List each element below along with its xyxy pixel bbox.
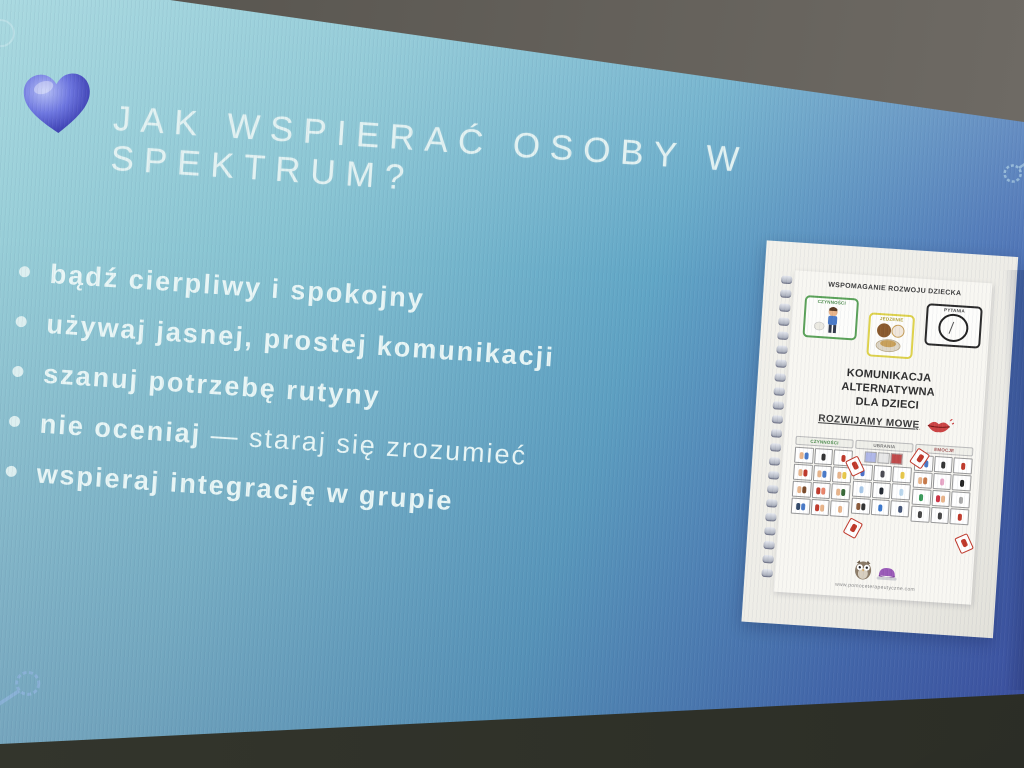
pictogram-cell <box>851 498 871 515</box>
pictogram-cell <box>810 499 830 516</box>
bullet-dot-icon <box>12 366 24 378</box>
owl-icon <box>853 559 872 581</box>
pictogram-food: JEDZENIE <box>866 312 915 359</box>
circuit-node-icon <box>0 651 64 718</box>
cover-pictograms: CZYNNOŚCI JEDZENIE <box>801 295 983 367</box>
pictogram-cell <box>794 447 814 464</box>
board-activities: CZYNNOŚCI <box>788 436 853 552</box>
bullet-text: bądź cierpliwy i spokojny <box>49 259 426 314</box>
pictogram-cell <box>953 458 973 475</box>
bullet-list: bądź cierpliwy i spokojny używaj jasnej,… <box>3 257 559 542</box>
booklet-subtitle: ROZWIJAMY MOWĘ <box>818 414 920 432</box>
pictogram-cell <box>930 507 950 524</box>
pictogram-cell <box>813 465 833 482</box>
pictogram-cell <box>873 465 893 482</box>
booklet-title: KOMUNIKACJA ALTERNATYWNA DLA DZIECI <box>798 364 978 417</box>
pictogram-cell <box>952 475 972 492</box>
boy-pictogram-icon <box>810 304 852 337</box>
bullet-dot-icon <box>15 316 27 328</box>
pictogram-cell <box>912 489 932 506</box>
slide-title: JAK WSPIERAĆ OSOBY W SPEKTRUM? <box>109 99 1012 238</box>
bullet-dot-icon <box>9 416 21 428</box>
pictogram-cell <box>951 492 971 509</box>
pictogram-cell <box>793 464 813 481</box>
pictogram-cell <box>931 490 951 507</box>
pictogram-activities: CZYNNOŚCI <box>802 295 859 340</box>
pictogram-cell <box>870 499 890 516</box>
pictogram-cell <box>831 484 851 501</box>
circuit-circle-icon <box>0 18 16 48</box>
slide-image-panel: WSPOMAGANIE ROZWOJU DZIECKA CZYNNOŚCI <box>741 240 1018 638</box>
lips-icon <box>925 418 954 437</box>
pictogram-boards: CZYNNOŚCI UBRANIA EMOCJE <box>788 436 973 560</box>
bullet-dot-icon <box>5 465 17 477</box>
photo-of-presentation-screen: JAK WSPIERAĆ OSOBY W SPEKTRUM? bądź cier… <box>0 0 1024 768</box>
pictogram-cell <box>852 481 872 498</box>
pictogram-cell <box>830 501 850 518</box>
pictogram-cell <box>814 448 834 465</box>
pictogram-cell <box>913 472 933 489</box>
pictogram-cell <box>892 467 912 484</box>
food-pictogram-icon <box>871 321 911 355</box>
pictogram-cell <box>910 506 930 523</box>
board-grid <box>791 447 853 518</box>
mirror-pictogram-icon <box>931 312 975 345</box>
pictogram-cell <box>872 482 892 499</box>
pictogram-cell <box>890 501 910 518</box>
pictogram-cell <box>933 456 953 473</box>
purple-cake-icon <box>875 566 898 583</box>
projection-screen-slide: JAK WSPIERAĆ OSOBY W SPEKTRUM? bądź cier… <box>0 0 1024 768</box>
pictogram-cell <box>791 498 811 515</box>
pictogram-cell <box>932 473 952 490</box>
pictogram-cell <box>950 509 970 526</box>
booklet-cover: WSPOMAGANIE ROZWOJU DZIECKA CZYNNOŚCI <box>773 270 992 604</box>
pictogram-cell <box>811 482 831 499</box>
pictogram-cell <box>792 481 812 498</box>
spiral-binding <box>761 275 792 577</box>
blue-heart-icon <box>19 70 95 139</box>
pictogram-questions: PYTANIA <box>924 303 983 349</box>
pictogram-cell <box>891 484 911 501</box>
bullet-dot-icon <box>19 266 31 278</box>
